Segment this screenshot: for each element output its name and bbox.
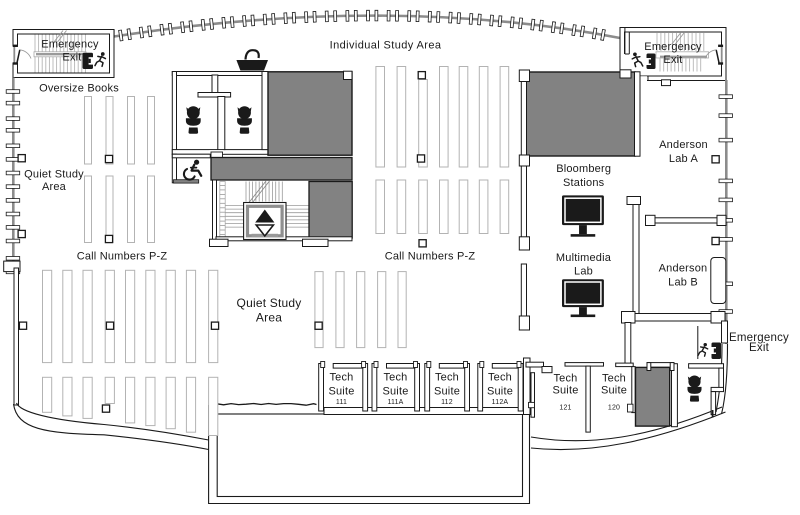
svg-text:Tech: Tech bbox=[488, 372, 512, 384]
svg-text:121: 121 bbox=[559, 404, 571, 411]
svg-text:Oversize Books: Oversize Books bbox=[39, 83, 119, 95]
svg-text:Tech: Tech bbox=[383, 372, 407, 384]
svg-text:Tech: Tech bbox=[435, 372, 459, 384]
svg-text:Emergency: Emergency bbox=[41, 39, 99, 51]
svg-text:Exit: Exit bbox=[62, 52, 81, 64]
svg-text:Emergency: Emergency bbox=[644, 41, 702, 53]
svg-text:Suite: Suite bbox=[487, 386, 513, 398]
svg-text:Individual Study Area: Individual Study Area bbox=[330, 40, 442, 52]
svg-text:112: 112 bbox=[441, 399, 453, 406]
svg-text:Suite: Suite bbox=[434, 386, 460, 398]
svg-text:120: 120 bbox=[608, 404, 620, 411]
svg-text:Exit: Exit bbox=[749, 342, 770, 354]
svg-text:111A: 111A bbox=[387, 399, 403, 406]
svg-text:Suite: Suite bbox=[328, 386, 354, 398]
svg-text:Anderson: Anderson bbox=[659, 139, 708, 151]
svg-text:Quiet Study: Quiet Study bbox=[237, 296, 302, 310]
svg-text:Suite: Suite bbox=[382, 386, 408, 398]
svg-text:Area: Area bbox=[42, 181, 67, 193]
svg-text:Tech: Tech bbox=[602, 373, 626, 385]
svg-text:Lab: Lab bbox=[574, 266, 593, 278]
svg-text:Tech: Tech bbox=[553, 373, 577, 385]
svg-text:Multimedia: Multimedia bbox=[556, 252, 612, 264]
svg-text:Stations: Stations bbox=[563, 177, 605, 189]
svg-text:Quiet Study: Quiet Study bbox=[24, 169, 84, 181]
svg-text:Anderson: Anderson bbox=[659, 263, 708, 275]
svg-text:Lab A: Lab A bbox=[669, 153, 699, 165]
svg-text:Bloomberg: Bloomberg bbox=[556, 163, 611, 175]
svg-text:Call Numbers P-Z: Call Numbers P-Z bbox=[77, 251, 168, 263]
svg-text:Call Numbers P-Z: Call Numbers P-Z bbox=[385, 251, 476, 263]
svg-text:Lab B: Lab B bbox=[668, 277, 698, 289]
svg-text:Area: Area bbox=[256, 311, 282, 325]
svg-text:Suite: Suite bbox=[601, 385, 627, 397]
svg-text:Exit: Exit bbox=[663, 54, 682, 66]
svg-text:111: 111 bbox=[336, 399, 347, 406]
svg-text:Tech: Tech bbox=[329, 372, 353, 384]
svg-text:112A: 112A bbox=[492, 399, 509, 406]
svg-text:Suite: Suite bbox=[552, 385, 578, 397]
